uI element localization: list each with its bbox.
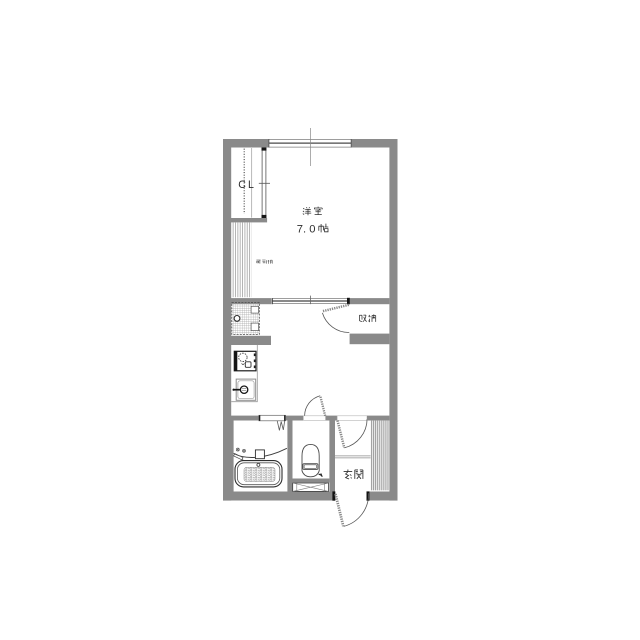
svg-text:0: 0 (309, 223, 315, 235)
svg-text:CL: CL (238, 179, 256, 191)
svg-text:7.: 7. (297, 223, 306, 235)
